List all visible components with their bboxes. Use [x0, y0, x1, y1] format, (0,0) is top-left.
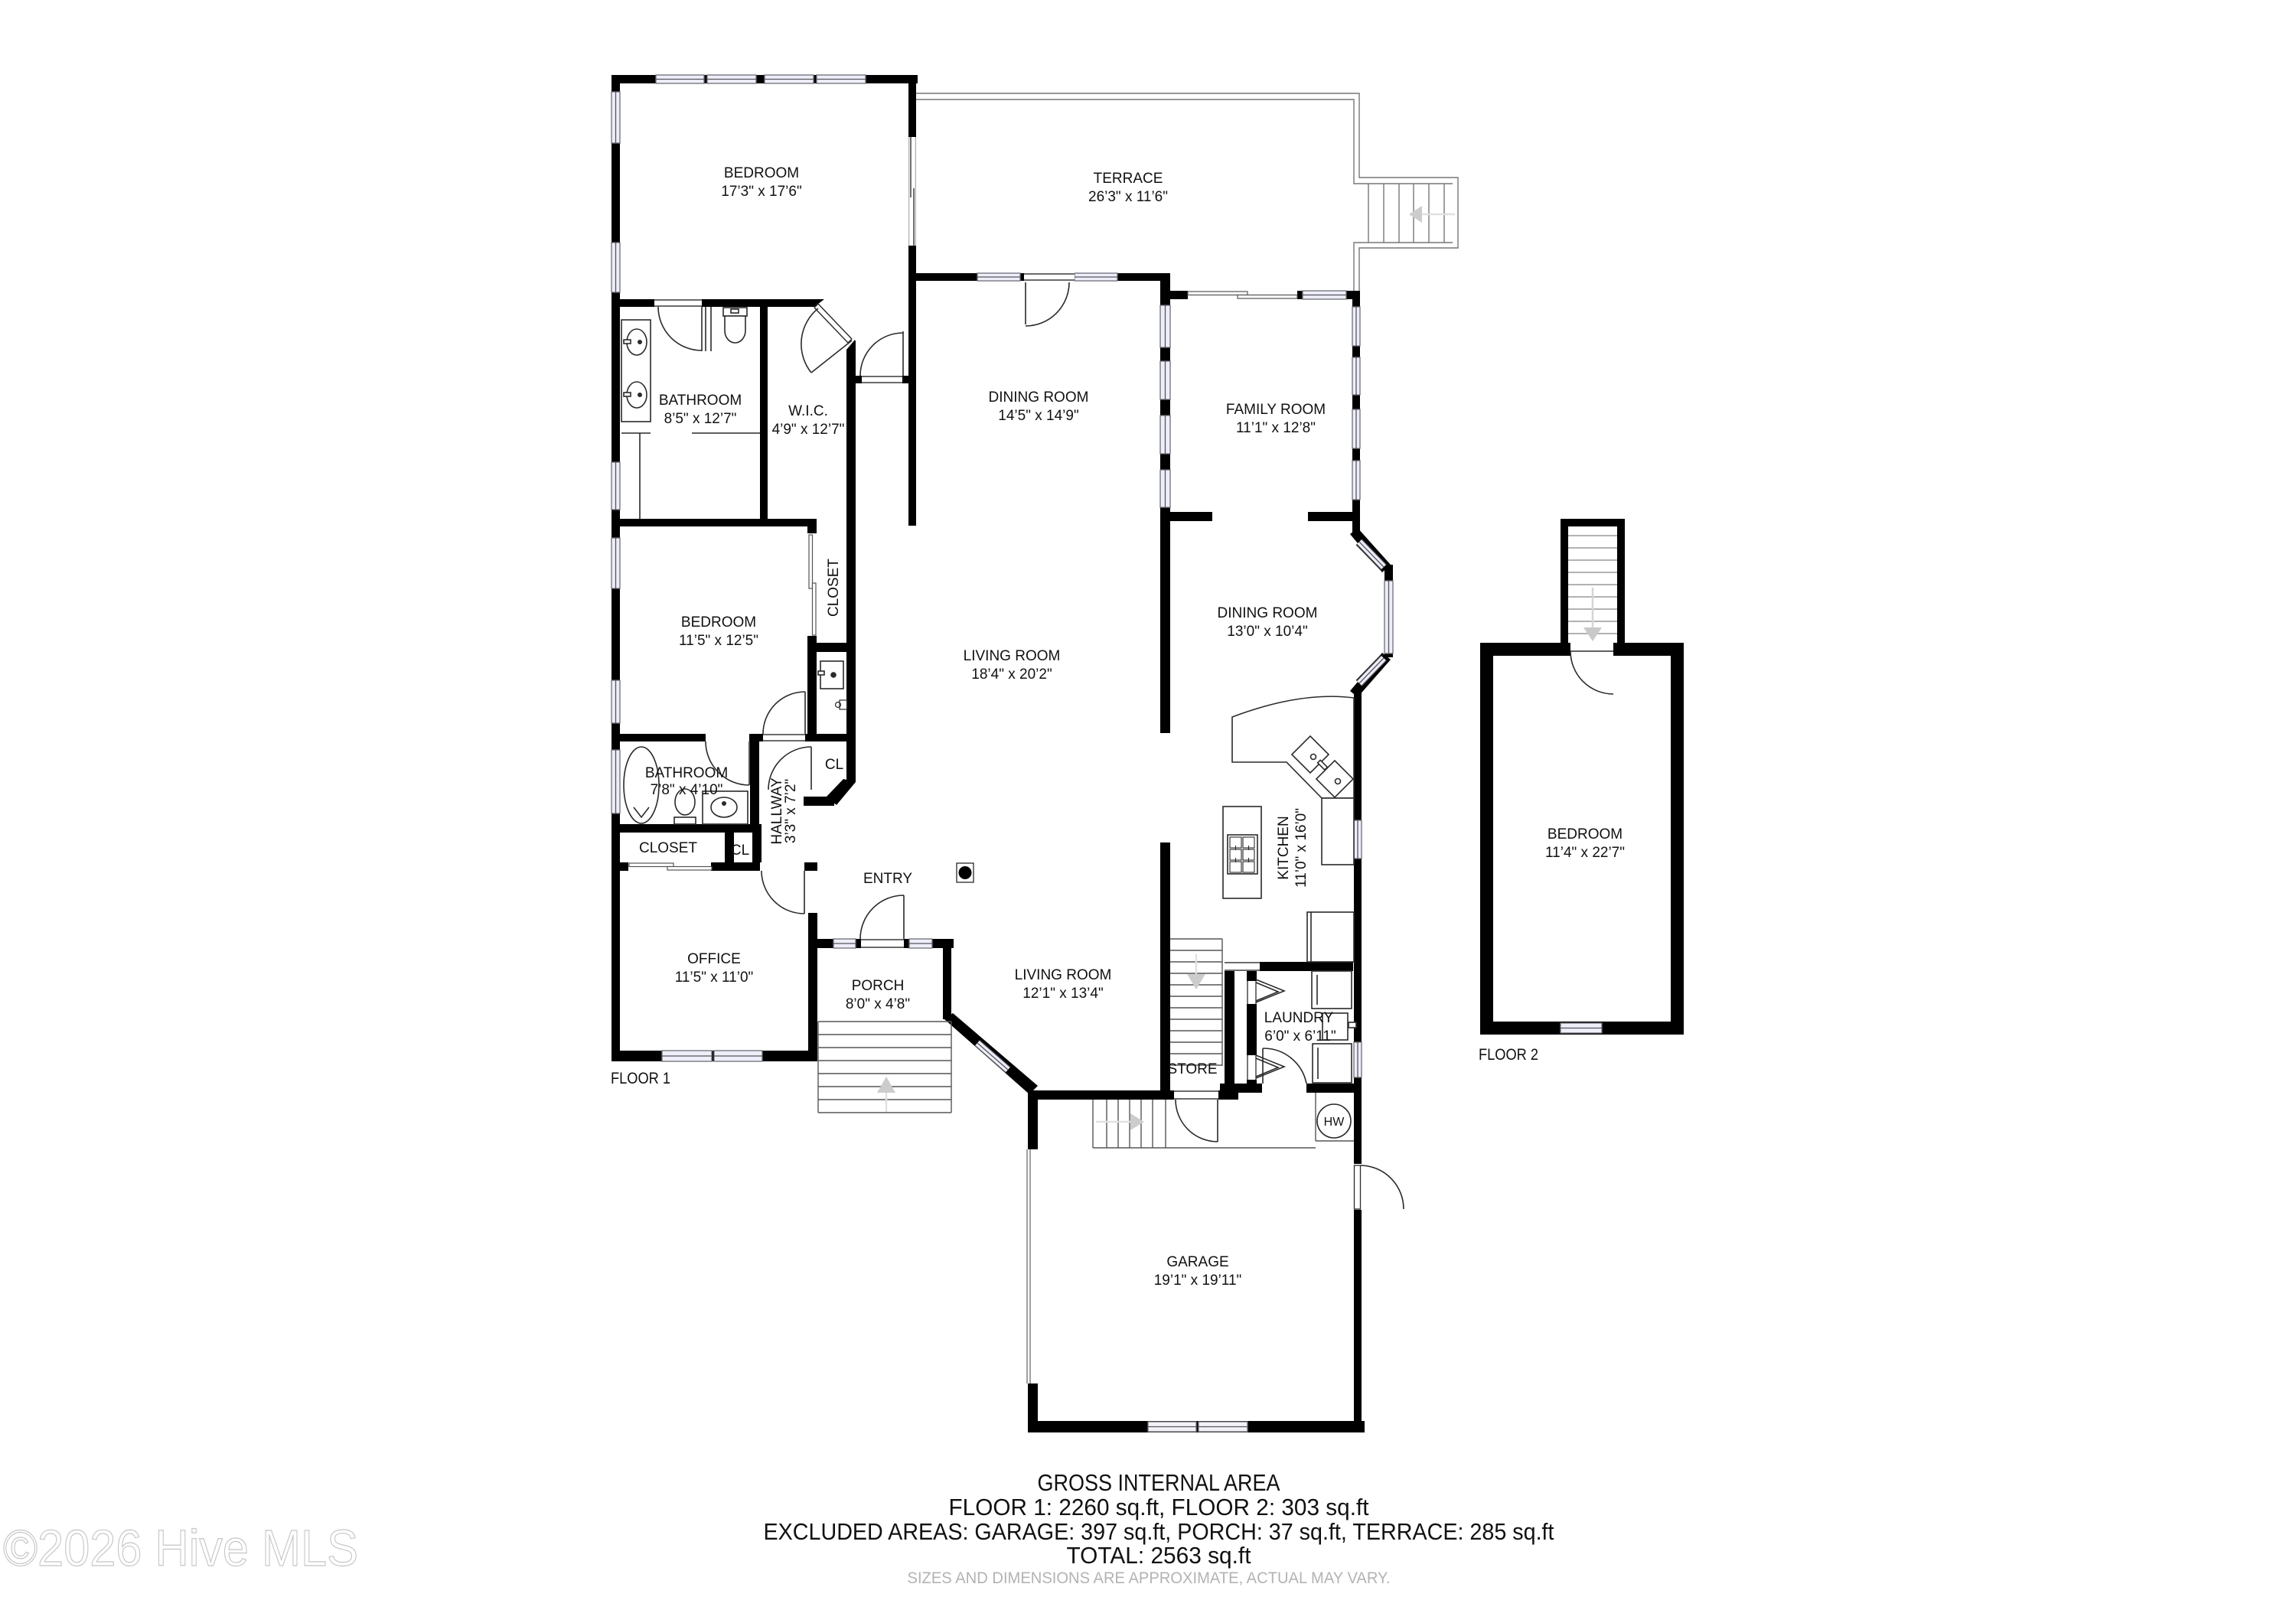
svg-text:TERRACE: TERRACE [1094, 171, 1163, 187]
svg-text:4’9" x 12’7": 4’9" x 12’7" [772, 422, 845, 438]
svg-text:BATHROOM: BATHROOM [645, 765, 728, 781]
svg-text:FLOOR 1: FLOOR 1 [611, 1070, 670, 1087]
svg-text:ENTRY: ENTRY [863, 871, 912, 887]
svg-text:8’0" x 4’8": 8’0" x 4’8" [846, 996, 910, 1012]
svg-text:8’5" x 12’7": 8’5" x 12’7" [664, 411, 737, 427]
svg-text:KITCHEN: KITCHEN [1276, 816, 1292, 879]
svg-text:BEDROOM: BEDROOM [1548, 826, 1623, 842]
svg-text:26’3" x 11’6": 26’3" x 11’6" [1088, 189, 1168, 205]
svg-text:CL: CL [731, 842, 749, 859]
svg-text:TOTAL: 2563 sq.ft: TOTAL: 2563 sq.ft [1067, 1542, 1251, 1569]
svg-text:7’8" x 4’10": 7’8" x 4’10" [651, 782, 723, 798]
svg-text:SIZES AND DIMENSIONS ARE APPRO: SIZES AND DIMENSIONS ARE APPROXIMATE, AC… [908, 1569, 1391, 1587]
svg-text:HW: HW [1324, 1116, 1345, 1129]
svg-text:FLOOR 2: FLOOR 2 [1479, 1046, 1538, 1064]
svg-text:PORCH: PORCH [852, 978, 905, 994]
svg-text:17’3" x 17’6": 17’3" x 17’6" [721, 184, 801, 200]
svg-text:GROSS INTERNAL AREA: GROSS INTERNAL AREA [1038, 1469, 1280, 1496]
svg-text:6’0" x 6’11": 6’0" x 6’11" [1264, 1028, 1336, 1045]
svg-text:LIVING ROOM: LIVING ROOM [964, 648, 1061, 664]
svg-text:EXCLUDED AREAS: GARAGE: 397 sq: EXCLUDED AREAS: GARAGE: 397 sq.ft, PORCH… [764, 1518, 1554, 1545]
svg-text:12’1" x 13’4": 12’1" x 13’4" [1022, 986, 1103, 1002]
svg-text:LAUNDRY: LAUNDRY [1264, 1010, 1334, 1026]
svg-text:11’5" x 11’0": 11’5" x 11’0" [675, 970, 754, 986]
svg-text:11’5" x 12’5": 11’5" x 12’5" [679, 633, 758, 649]
svg-text:GARAGE: GARAGE [1166, 1254, 1228, 1270]
svg-text:CLOSET: CLOSET [826, 559, 842, 617]
svg-text:19’1" x 19’11": 19’1" x 19’11" [1154, 1273, 1242, 1289]
svg-text:©2026 Hive MLS: ©2026 Hive MLS [3, 1520, 358, 1577]
svg-text:BATHROOM: BATHROOM [659, 393, 742, 409]
svg-text:18’4" x 20’2": 18’4" x 20’2" [971, 666, 1052, 683]
svg-text:BEDROOM: BEDROOM [681, 614, 756, 631]
svg-text:3’3" x 7’2": 3’3" x 7’2" [783, 779, 799, 843]
svg-text:14’5" x 14’9": 14’5" x 14’9" [998, 408, 1078, 424]
svg-text:13’0" x 10’4": 13’0" x 10’4" [1227, 624, 1307, 640]
svg-text:OFFICE: OFFICE [687, 951, 741, 967]
svg-text:LIVING ROOM: LIVING ROOM [1015, 967, 1112, 983]
svg-text:W.I.C.: W.I.C. [788, 403, 828, 419]
svg-text:STORE: STORE [1167, 1061, 1217, 1077]
svg-text:DINING ROOM: DINING ROOM [1218, 605, 1318, 621]
svg-text:CLOSET: CLOSET [639, 840, 697, 856]
svg-text:DINING ROOM: DINING ROOM [989, 389, 1089, 406]
svg-text:11’4" x 22’7": 11’4" x 22’7" [1545, 845, 1625, 861]
svg-text:BEDROOM: BEDROOM [724, 165, 799, 181]
svg-text:11’0" x 16’0": 11’0" x 16’0" [1293, 808, 1309, 888]
svg-text:11’1" x 12’8": 11’1" x 12’8" [1236, 420, 1316, 436]
svg-text:FAMILY ROOM: FAMILY ROOM [1226, 402, 1326, 418]
svg-text:CL: CL [825, 757, 843, 773]
svg-text:FLOOR 1: 2260 sq.ft, FLOOR 2:: FLOOR 1: 2260 sq.ft, FLOOR 2: 303 sq.ft [949, 1494, 1369, 1520]
